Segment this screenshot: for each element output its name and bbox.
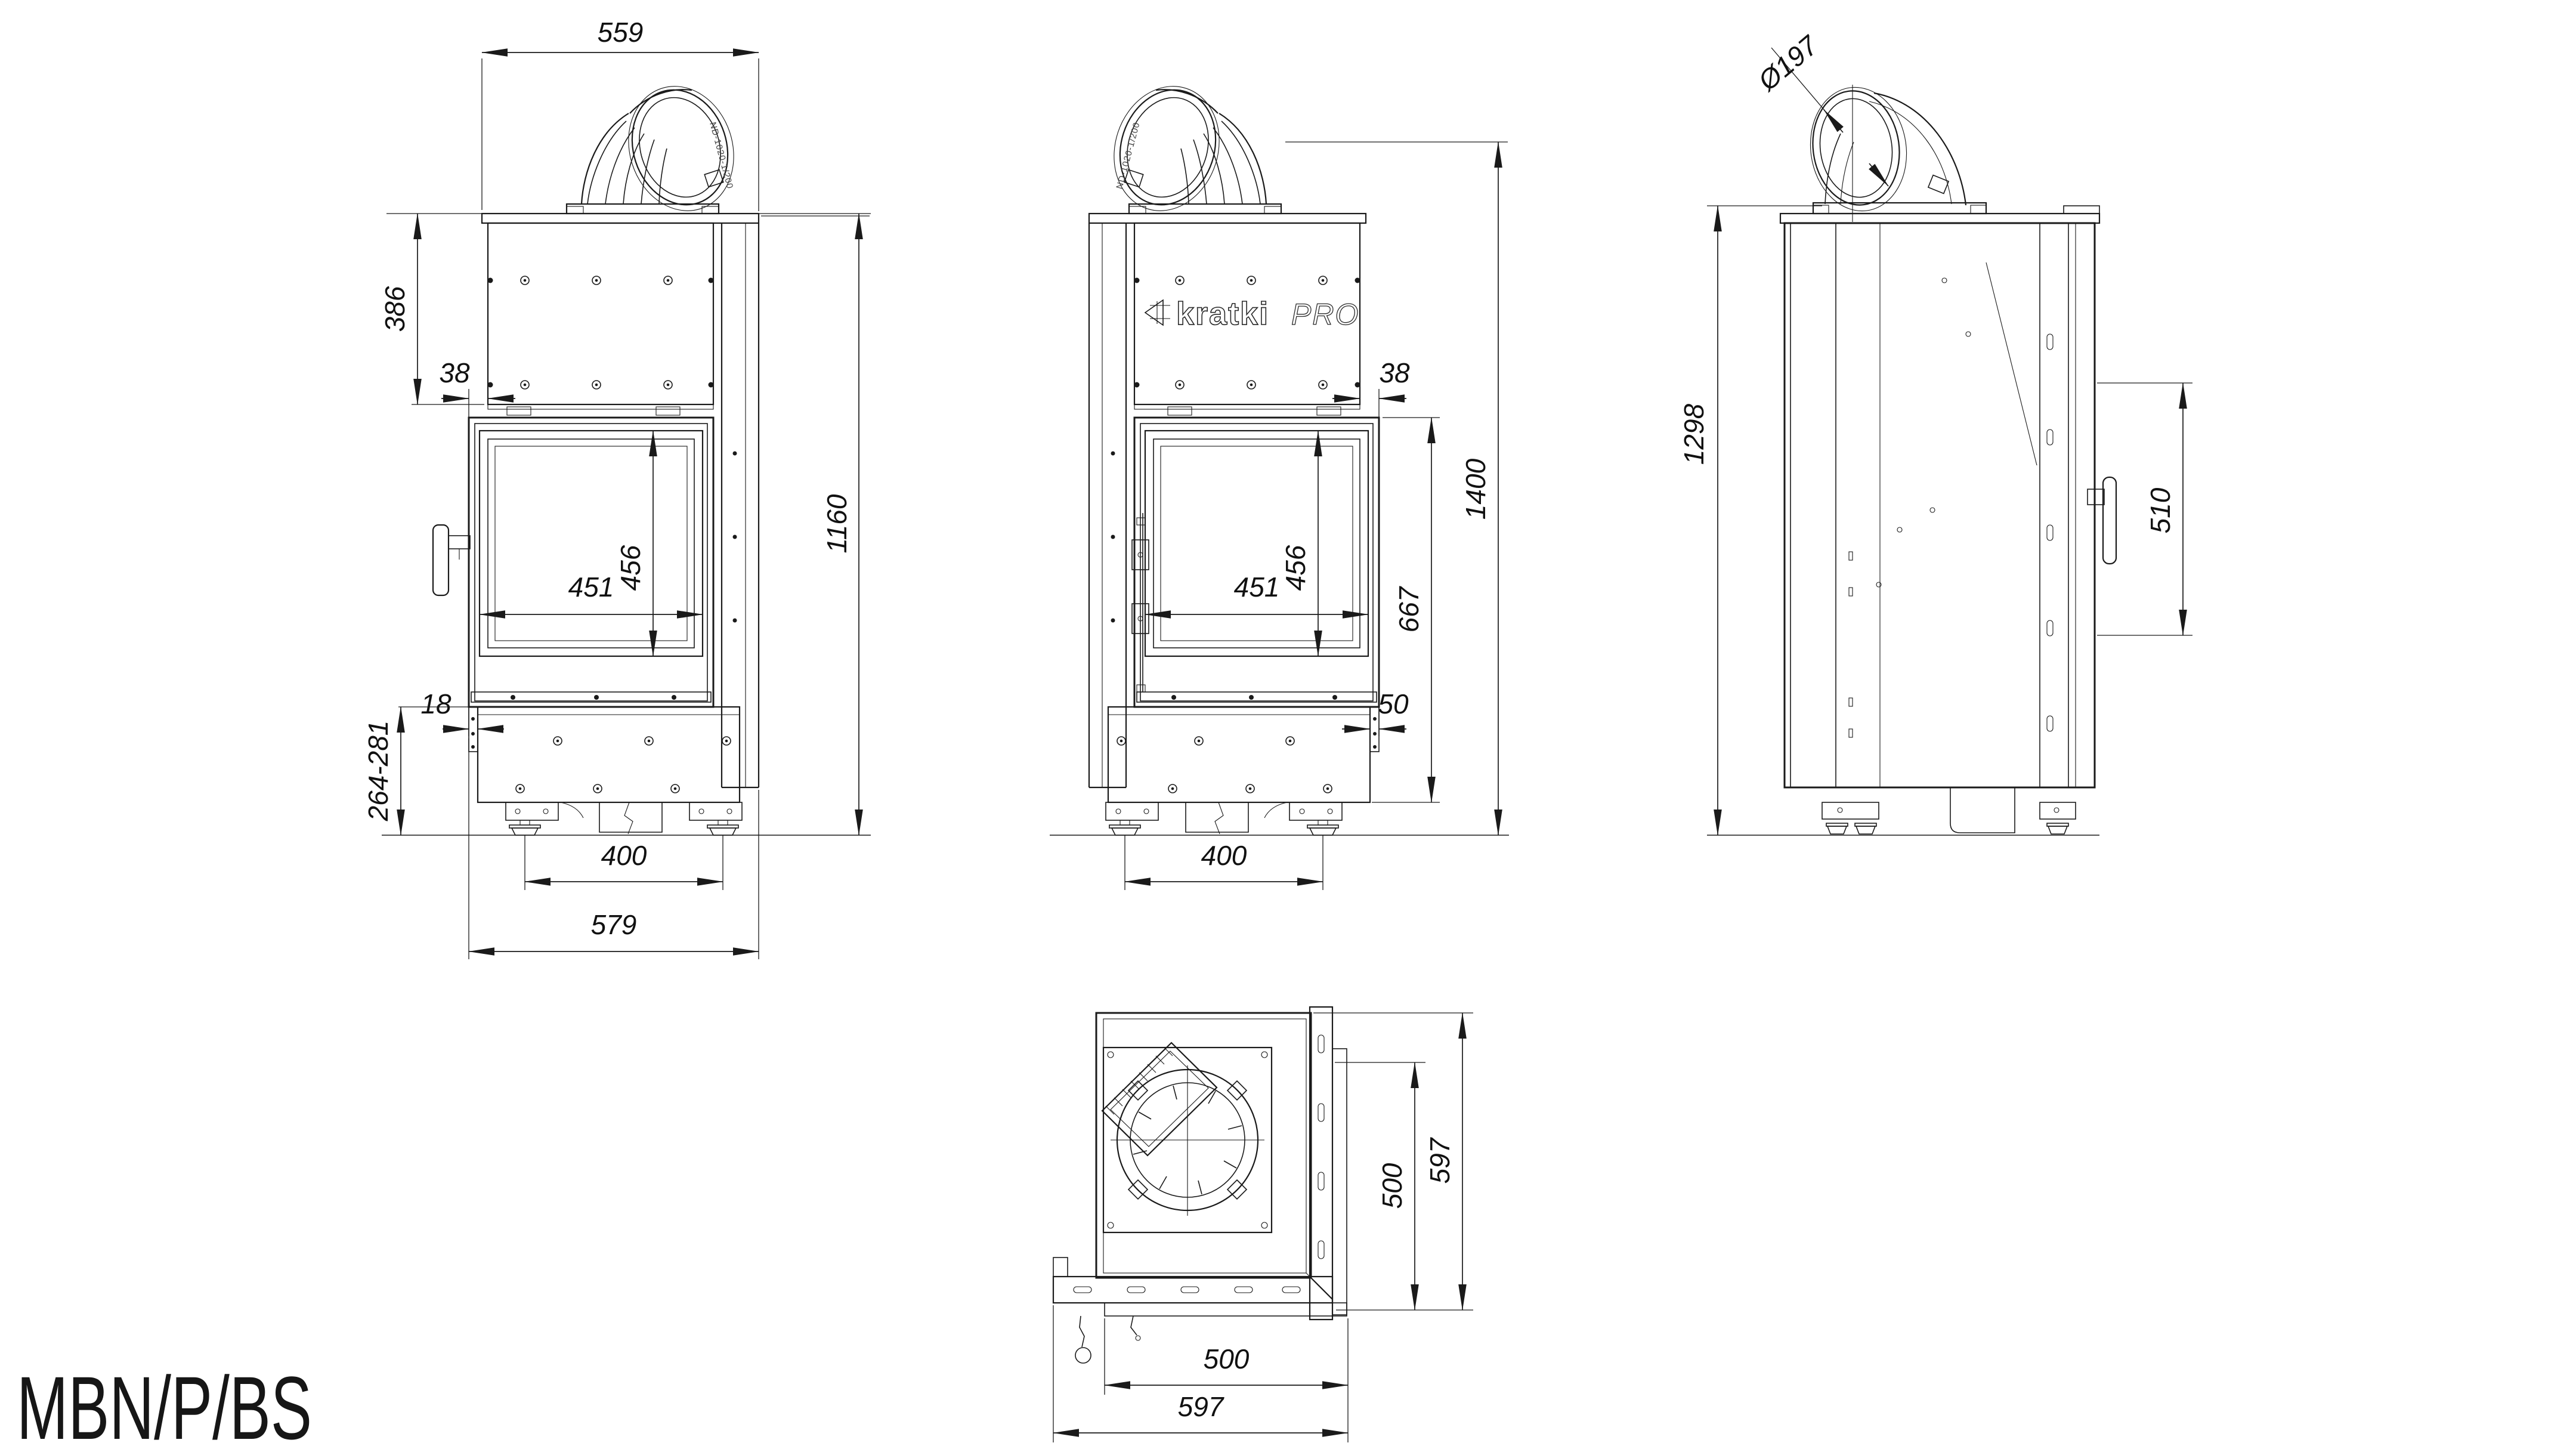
dim-front-glass-width-label: 451 (568, 571, 614, 603)
top-body-outline (1096, 1013, 1332, 1299)
dim-top-glass-depth-label: 500 (1377, 1163, 1408, 1209)
dim-top-overall-width-label: 597 (1178, 1391, 1224, 1422)
dim-front-glass-width: 451 (480, 571, 703, 614)
front-flue-collar: ND-1020-1/200 (567, 73, 750, 225)
front-body (469, 214, 759, 835)
dim-front-top-width-label: 559 (598, 17, 644, 48)
dim-side-glass-height-label: 510 (2145, 487, 2176, 533)
rear-view: ND-1020-1/200 kratki PRO (1050, 73, 1509, 890)
dim-front-door-offset: 38 (439, 357, 515, 418)
dim-rear-glass-height: 456 (1280, 431, 1318, 656)
front-door-handle (433, 525, 470, 595)
dim-front-top-width: 559 (482, 17, 759, 211)
dim-front-glass-height: 456 (615, 431, 653, 656)
brand-logo-suffix: PRO (1291, 298, 1359, 331)
dim-top-overall-depth: 597 (1313, 1013, 1473, 1310)
top-right-flange (1310, 1007, 1347, 1320)
dim-top-glass-width-label: 500 (1204, 1343, 1250, 1374)
model-title: MBN/P/BS (17, 1358, 312, 1449)
dim-top-overall-width: 597 (1053, 1305, 1348, 1442)
side-body (1780, 206, 2099, 787)
dim-front-plinth-height-label: 264-281 (363, 721, 394, 822)
dim-front-feet-spacing-label: 400 (601, 840, 647, 871)
dim-top-overall-depth-label: 597 (1424, 1137, 1455, 1184)
dim-front-upper-height-label: 386 (379, 286, 410, 332)
dim-side-flue-diameter-label: Ø197 (1751, 29, 1824, 97)
side-feet (1822, 787, 2076, 834)
dim-rear-feet-spacing-label: 400 (1201, 840, 1247, 871)
dim-rear-feet-spacing: 400 (1125, 835, 1323, 890)
top-flue-duct (1102, 1043, 1217, 1156)
dim-front-plinth-offset: 18 (420, 688, 504, 736)
dim-side-flue-diameter: Ø197 (1751, 29, 1888, 186)
dim-rear-total-height: 1400 (1285, 142, 1508, 835)
dim-top-glass-width: 500 (1105, 1318, 1348, 1442)
technical-drawing: ND-1020-1/200 559 386 (0, 0, 2576, 1449)
top-pull-chain (1075, 1316, 1140, 1363)
dim-rear-base-offset: 50 (1342, 688, 1409, 736)
dim-front-total-height: 1160 (761, 214, 870, 835)
top-flue-plate (1103, 1048, 1272, 1232)
dim-rear-base-offset-label: 50 (1378, 688, 1409, 719)
side-door-handle (2088, 477, 2116, 564)
dim-rear-door-section-height-label: 667 (1393, 586, 1424, 632)
dim-front-door-offset-label: 38 (439, 357, 470, 388)
technical-drawing-page: ND-1020-1/200 559 386 (0, 0, 2576, 1449)
dim-front-glass-height-label: 456 (615, 545, 646, 591)
dim-rear-glass-width: 451 (1145, 571, 1368, 614)
dim-rear-door-offset: 38 (1332, 357, 1410, 418)
dim-rear-glass-height-label: 456 (1280, 545, 1311, 591)
dim-rear-door-offset-label: 38 (1379, 357, 1410, 388)
top-front-flange (1053, 1258, 1347, 1316)
side-flue-collar (1802, 81, 1986, 222)
dim-front-plinth-height: 264-281 (363, 707, 471, 835)
dim-rear-total-height-label: 1400 (1460, 458, 1491, 520)
brand-logo-main: kratki (1176, 296, 1269, 332)
side-view: Ø197 1298 510 (1678, 29, 2192, 835)
dim-front-feet-spacing: 400 (525, 835, 723, 890)
dim-side-body-height: 1298 (1678, 206, 1822, 835)
brand-logo: kratki PRO (1145, 296, 1359, 332)
kratki-logo-glyph (1145, 300, 1170, 325)
dim-rear-glass-width-label: 451 (1234, 571, 1280, 603)
front-view: ND-1020-1/200 559 386 (363, 17, 871, 959)
dim-side-glass-height: 510 (2097, 383, 2192, 635)
dim-side-body-height-label: 1298 (1678, 403, 1709, 465)
dim-front-overall-width-label: 579 (591, 909, 637, 940)
dim-top-glass-depth: 500 (1335, 1062, 1473, 1310)
rear-flue-collar: ND-1020-1/200 (1098, 73, 1281, 225)
front-flue-cast-marking: ND-1020-1/200 (707, 121, 735, 190)
dim-rear-door-section-height: 667 (1372, 418, 1440, 802)
top-view: 500 597 500 597 (1053, 1007, 1473, 1442)
dim-front-plinth-offset-label: 18 (420, 688, 452, 719)
dim-front-total-height-label: 1160 (821, 494, 852, 553)
